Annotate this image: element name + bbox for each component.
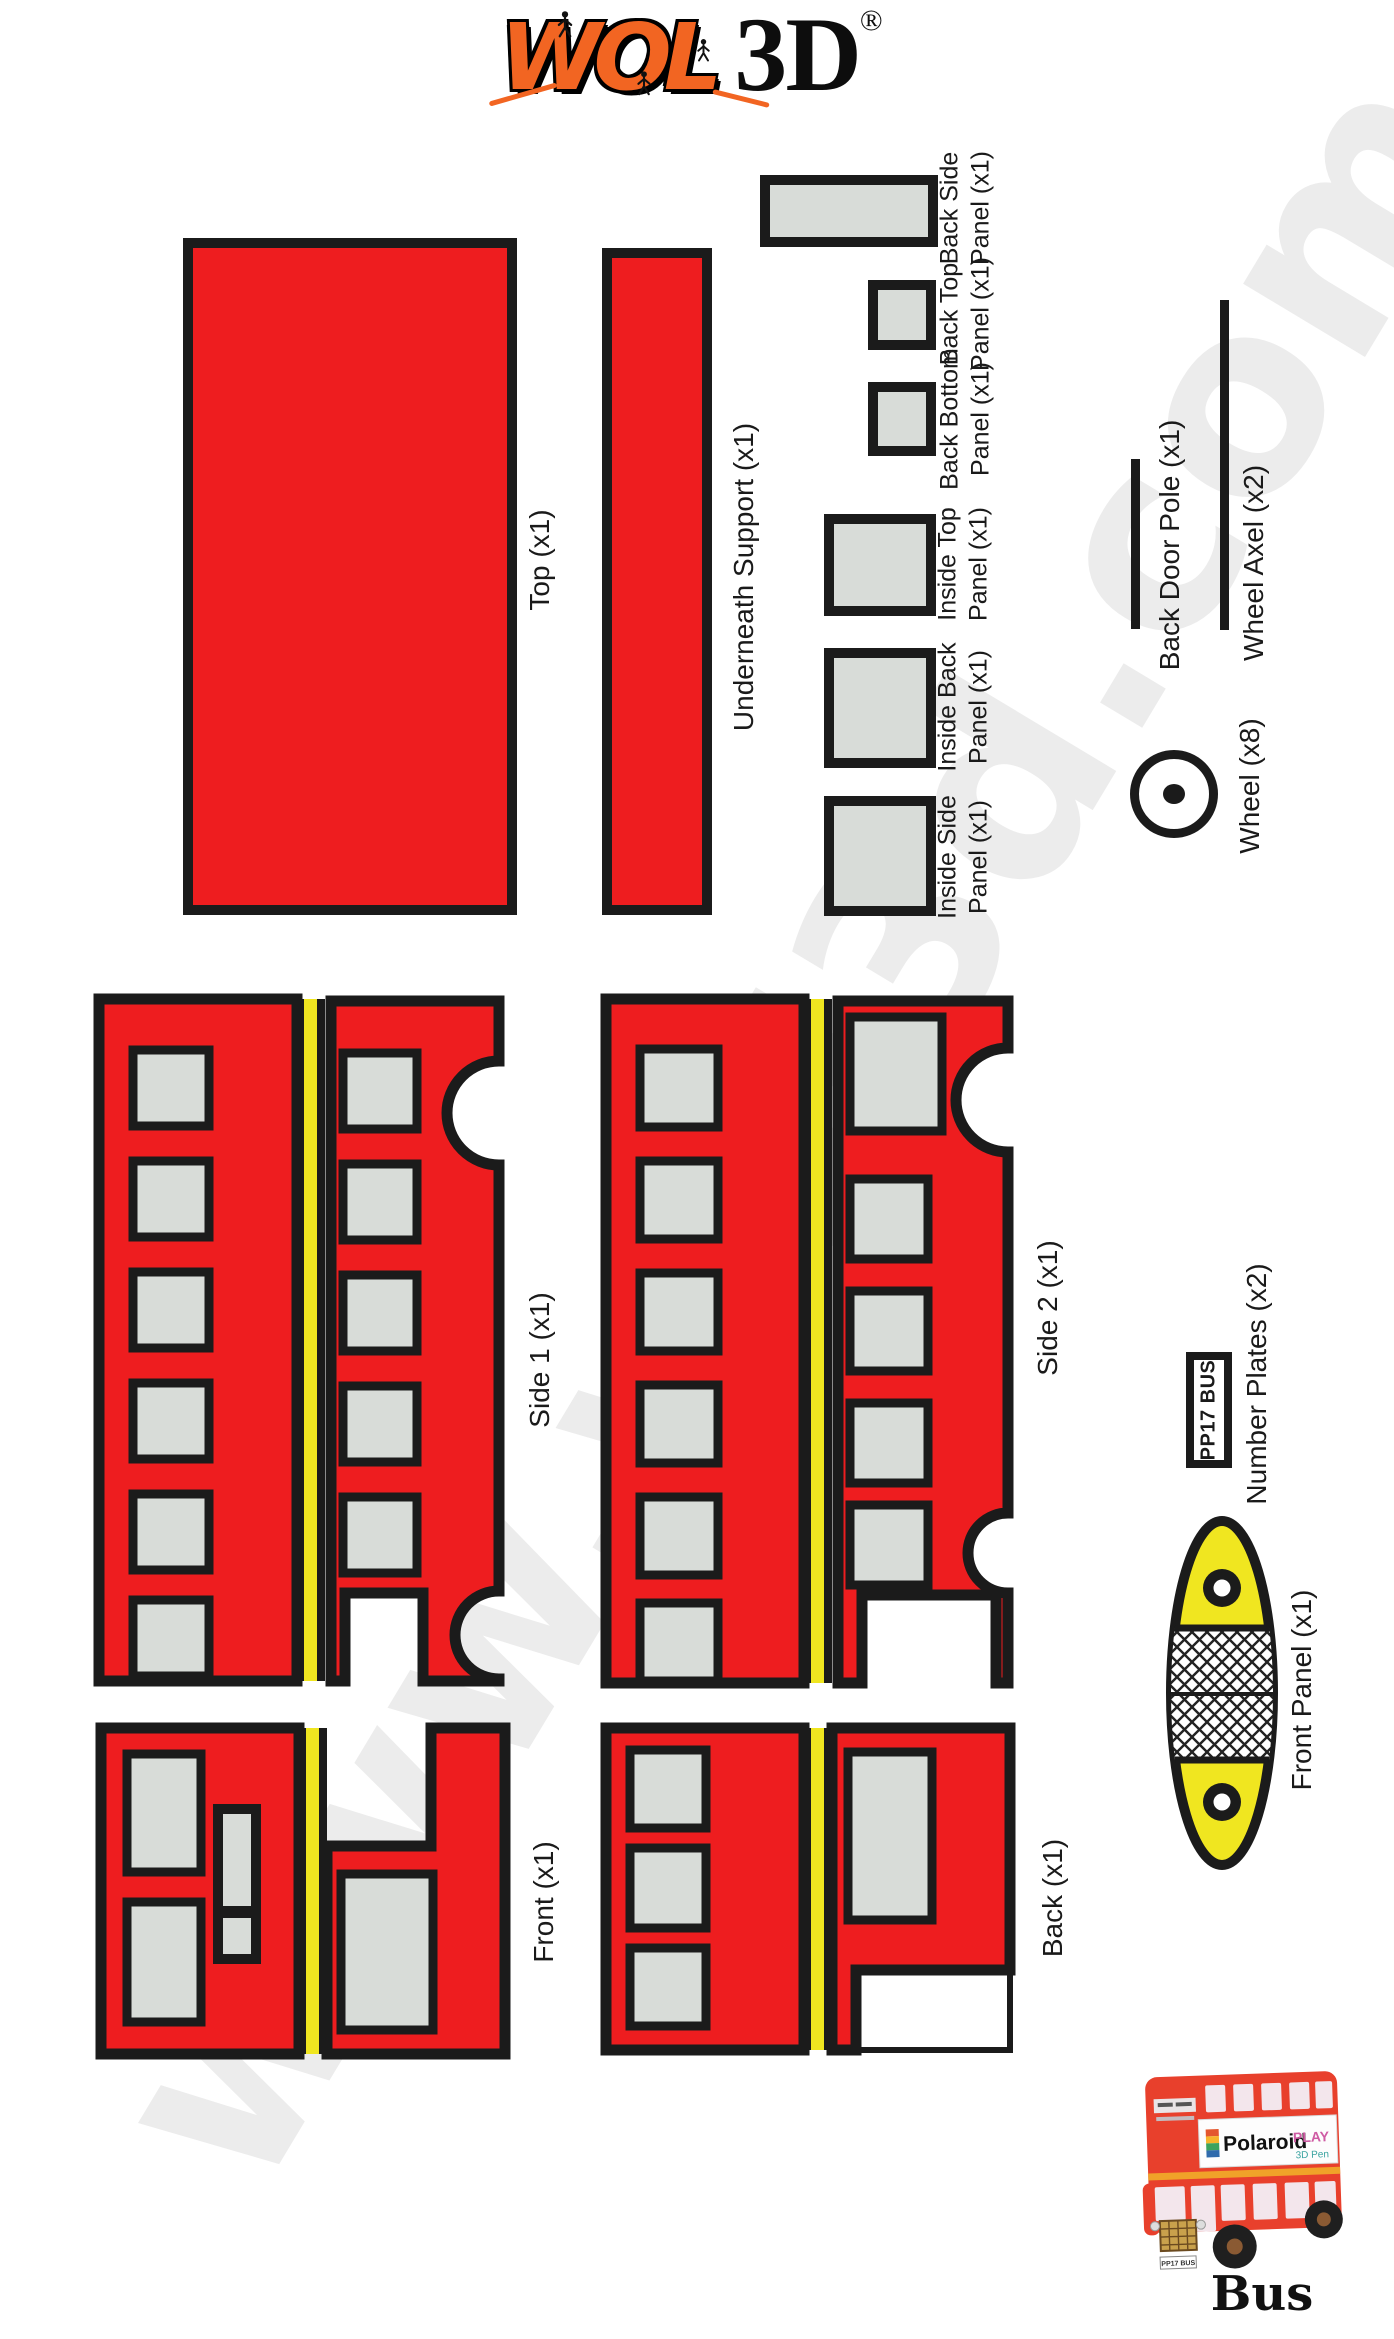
logo-3d-text: 3D <box>734 6 860 104</box>
climber-figure-icon <box>636 70 652 96</box>
back-side-panel-label: Back SidePanel (x1) <box>935 151 996 265</box>
back-label: Back (x1) <box>1037 1839 1069 1957</box>
front-yellow-stripe <box>306 1728 319 2054</box>
back-door-pole-piece <box>1131 459 1140 629</box>
inside-side-panel-label: Inside SidePanel (x1) <box>933 795 994 919</box>
top-piece-label: Top (x1) <box>524 509 556 610</box>
bus-grille <box>1160 2220 1197 2251</box>
front-panel-label: Front Panel (x1) <box>1286 1590 1318 1791</box>
front-piece <box>95 1722 515 2062</box>
bus-caption: Bus <box>1197 2266 1327 2322</box>
banner-sub-text: 3D Pen <box>1295 2149 1329 2161</box>
side1-label: Side 1 (x1) <box>524 1292 556 1427</box>
climber-figure-icon <box>696 38 711 62</box>
side1-piece <box>93 993 513 1688</box>
bus-plate-text: PP17 BUS <box>1161 2260 1195 2268</box>
inside-back-panel <box>824 648 936 768</box>
inside-side-panel <box>824 796 936 916</box>
bus-headlight-icon <box>1150 2222 1159 2231</box>
wheel-hub <box>1163 784 1185 804</box>
back-yellow-stripe <box>811 1728 824 2050</box>
front-label: Front (x1) <box>528 1841 560 1962</box>
back-bottom-panel <box>868 382 936 456</box>
back-door-pole-label: Back Door Pole (x1) <box>1154 420 1186 671</box>
side1-yellow-stripe <box>304 999 317 1681</box>
back-cutout-outline <box>856 1970 1010 2050</box>
back-top-panel <box>868 280 936 350</box>
bus-number-plate: PP17 BUS <box>1160 2256 1196 2269</box>
registered-mark-icon: ® <box>860 4 883 38</box>
front-panel-piece <box>1162 1512 1282 1874</box>
wheel-piece <box>1130 750 1218 838</box>
polaroid-logo-icon <box>1206 2129 1220 2157</box>
back-side-panel <box>760 175 938 247</box>
inside-top-panel <box>824 514 936 616</box>
inside-top-panel-label: Inside TopPanel (x1) <box>933 507 994 621</box>
bus-ad-banner: Polaroid PLAY 3D Pen <box>1198 2115 1338 2168</box>
wol3d-logo: WOL 3D ® <box>500 4 883 104</box>
inside-back-panel-label: Inside BackPanel (x1) <box>933 642 994 771</box>
front-door-window <box>341 1874 433 2030</box>
side1-lower-windows <box>343 1053 417 1573</box>
top-piece <box>183 238 517 915</box>
underneath-support-label: Underneath Support (x1) <box>728 423 760 731</box>
underneath-support-piece <box>602 248 712 915</box>
bus-headlight-icon <box>1196 2220 1205 2229</box>
number-plate-text: PP17 BUS <box>1198 1360 1221 1461</box>
wheel-axel-label: Wheel Axel (x2) <box>1238 465 1270 661</box>
number-plates-label: Number Plates (x2) <box>1241 1263 1273 1504</box>
wheel-axel-piece <box>1220 300 1229 630</box>
climber-figure-icon <box>556 10 574 38</box>
side2-piece <box>600 993 1025 1693</box>
back-door-window <box>848 1752 932 1920</box>
back-bottom-panel-label: Back BottomPanel (x1) <box>935 348 996 490</box>
side2-label: Side 2 (x1) <box>1032 1240 1064 1375</box>
parts-sheet: www.wol3d.com WOL 3D ® Top (x1) Undernea… <box>0 0 1394 2339</box>
banner-play-text: PLAY <box>1293 2128 1330 2145</box>
side2-yellow-stripe <box>811 999 824 1683</box>
back-piece <box>600 1722 1025 2062</box>
wheel-label: Wheel (x8) <box>1234 718 1266 853</box>
bus-photo: Polaroid PLAY 3D Pen PP17 BUS <box>1128 2062 1368 2274</box>
back-windows <box>630 1750 706 2026</box>
